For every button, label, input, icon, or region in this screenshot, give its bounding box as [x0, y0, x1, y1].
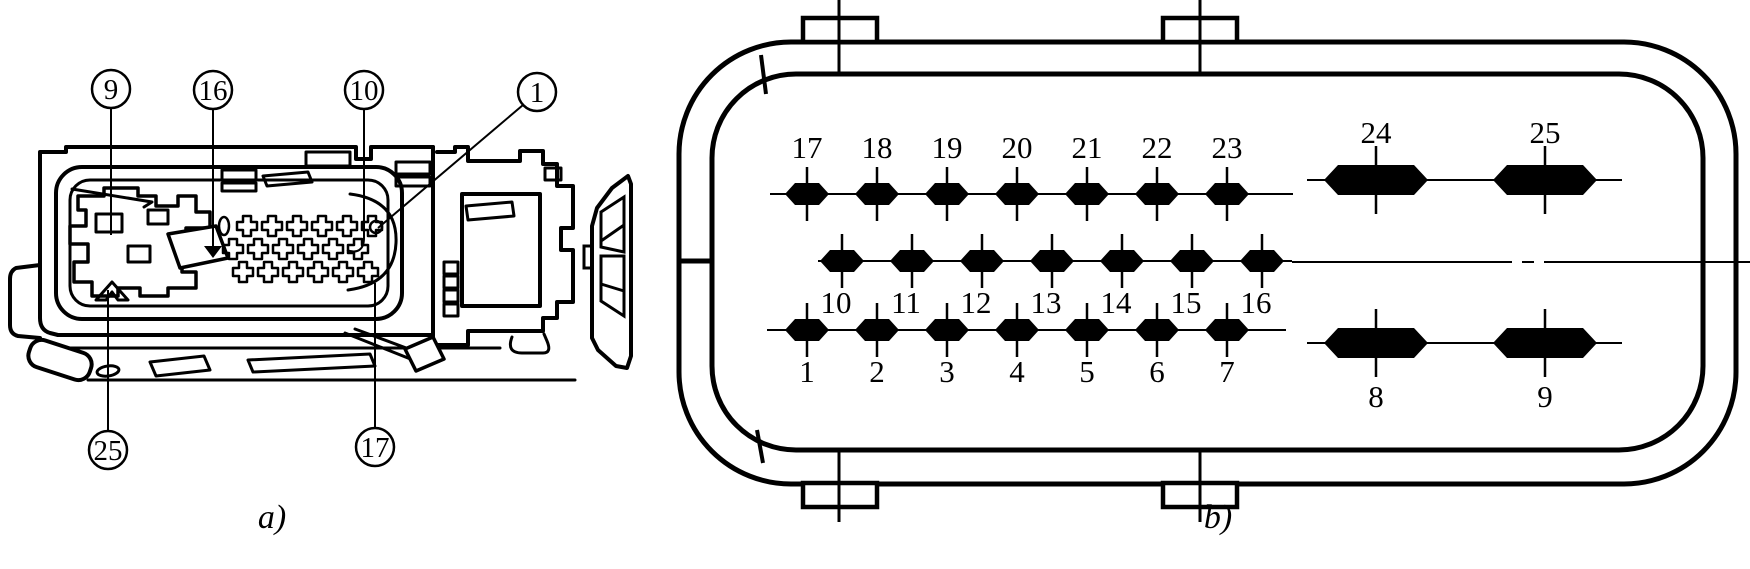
pin-number: 12	[961, 285, 992, 320]
pin-number: 3	[939, 354, 955, 389]
pin-contact	[855, 319, 899, 341]
pin-number: 16	[1241, 285, 1272, 320]
pin-14: 14	[1100, 234, 1144, 320]
seal-hole	[298, 239, 318, 259]
pin-number: 23	[1212, 130, 1243, 165]
pin-contact	[1030, 250, 1074, 272]
skirt-foot	[25, 337, 95, 383]
row-top-large: 2425	[1324, 115, 1597, 214]
pin-contact	[960, 250, 1004, 272]
pin-25: 25	[1493, 115, 1597, 214]
pin-contact	[1240, 250, 1284, 272]
seal-hole	[287, 216, 307, 236]
key-cluster-rect-2	[128, 246, 150, 262]
pin-contact	[1493, 165, 1597, 195]
pin-18: 18	[855, 130, 899, 221]
pin-contact	[1170, 250, 1214, 272]
top-detail-rect-1	[222, 170, 256, 180]
pin-number: 2	[869, 354, 885, 389]
pin-contact	[995, 183, 1039, 205]
pin-number: 25	[1530, 115, 1561, 150]
pin-number: 24	[1361, 115, 1393, 150]
caption-a: a)	[258, 499, 286, 536]
pin-contact	[1205, 183, 1249, 205]
seal-hole	[333, 262, 353, 282]
figure: 9161012517 17181920212223101112131415161…	[0, 0, 1750, 569]
row-top-small: 17181920212223	[785, 130, 1249, 221]
pin-23: 23	[1205, 130, 1249, 221]
seam-bottom-left	[757, 430, 763, 463]
callout-number: 17	[361, 432, 390, 464]
seal-hole	[233, 262, 253, 282]
rear-ladder-2	[444, 276, 458, 288]
seal-hole	[283, 262, 303, 282]
row-middle-small: 10111213141516	[820, 234, 1284, 320]
seal-hole	[237, 216, 257, 236]
pin-15: 15	[1170, 234, 1214, 320]
pin-21: 21	[1065, 130, 1109, 221]
pin-number: 9	[1537, 379, 1553, 414]
seal-hole	[323, 239, 343, 259]
pin-20: 20	[995, 130, 1039, 221]
pin-number: 15	[1171, 285, 1202, 320]
pin-contact	[1065, 319, 1109, 341]
pin-number: 22	[1142, 130, 1173, 165]
housing-top-outline	[40, 147, 433, 163]
seal-holes	[219, 216, 382, 282]
seal-hole	[258, 262, 278, 282]
pin-contact	[1065, 183, 1109, 205]
seam-top-left	[761, 55, 766, 94]
pin-number: 17	[792, 130, 823, 165]
pin-number: 7	[1219, 354, 1235, 389]
pin-contact	[1100, 250, 1144, 272]
pin-19: 19	[925, 130, 969, 221]
rear-bracket-wedge	[466, 202, 514, 220]
rear-bracket-window	[462, 194, 540, 306]
rear-ladder-3	[444, 290, 458, 302]
pin-number: 20	[1002, 130, 1033, 165]
seal-hole	[358, 262, 378, 282]
seal-hole	[273, 239, 293, 259]
rear-bottom-blob	[510, 334, 548, 353]
rear-ladder-4	[444, 304, 458, 316]
pin-contact	[890, 250, 934, 272]
latch-arm-block	[405, 337, 444, 371]
pin-number: 11	[891, 285, 921, 320]
seal-hole	[337, 216, 357, 236]
row-bottom-large: 89	[1324, 309, 1597, 414]
callout-number: 10	[350, 75, 379, 107]
connector-diagram: 9161012517 17181920212223101112131415161…	[0, 0, 1750, 569]
skirt-slot-1	[150, 356, 210, 376]
key-cluster-rect-3	[148, 210, 168, 224]
housing-left-tab	[10, 265, 40, 338]
pin-number: 5	[1079, 354, 1095, 389]
seal-hole	[308, 262, 328, 282]
pin-16: 16	[1240, 234, 1284, 320]
pin-contact	[1135, 319, 1179, 341]
top-detail-rect-3	[306, 152, 350, 166]
seal-hole	[248, 239, 268, 259]
key-cluster-rect-1	[96, 214, 122, 232]
pin-number: 18	[862, 130, 893, 165]
pin-number: 13	[1031, 285, 1062, 320]
pin-contact	[1493, 328, 1597, 358]
pin-12: 12	[960, 234, 1004, 320]
seal-hole-oval	[219, 217, 229, 235]
seal-hole	[262, 216, 282, 236]
skirt-slot-2	[248, 354, 375, 372]
pin-11: 11	[890, 234, 934, 320]
pin-contact	[1205, 319, 1249, 341]
pin-number: 8	[1368, 379, 1384, 414]
callout-number: 1	[530, 77, 545, 109]
pin-10: 10	[820, 234, 864, 320]
pin-contact	[995, 319, 1039, 341]
pin-number: 14	[1101, 285, 1133, 320]
pin-22: 22	[1135, 130, 1179, 221]
callout-9: 9	[92, 70, 130, 235]
rear-ladder-1	[444, 262, 458, 274]
top-detail-rect-2	[222, 183, 256, 191]
pin-number: 21	[1072, 130, 1103, 165]
pin-contact	[1135, 183, 1179, 205]
callout-17: 17	[356, 283, 394, 466]
pin-number: 4	[1009, 354, 1025, 389]
callout-number: 9	[104, 74, 119, 106]
top-detail-rect-4	[396, 162, 430, 174]
side-latch-hole-lower	[601, 256, 624, 316]
pin-contact	[785, 183, 829, 205]
pin-13: 13	[1030, 234, 1074, 320]
side-latch-hole-upper	[601, 197, 624, 252]
pin-8: 8	[1324, 309, 1428, 414]
pins: 1718192021222310111213141516123456724258…	[767, 115, 1750, 414]
connector-side-view	[10, 147, 575, 383]
seal-hole	[312, 216, 332, 236]
pin-contact	[785, 319, 829, 341]
pin-9: 9	[1493, 309, 1597, 414]
pin-number: 10	[821, 285, 852, 320]
callout-number: 16	[199, 75, 228, 107]
caption-b: b)	[1204, 499, 1232, 536]
pin-contact	[820, 250, 864, 272]
pin-contact	[855, 183, 899, 205]
pin-contact	[1324, 328, 1428, 358]
pin-17: 17	[785, 130, 829, 221]
pin-24: 24	[1324, 115, 1428, 214]
pin-number: 6	[1149, 354, 1165, 389]
side-latch-notch	[584, 246, 592, 268]
callout-leader-line	[378, 105, 523, 228]
seal-hole	[348, 239, 368, 259]
callouts-a: 9161012517	[89, 70, 556, 469]
pin-number: 1	[799, 354, 815, 389]
pin-contact	[1324, 165, 1428, 195]
pin-contact	[925, 319, 969, 341]
pin-number: 19	[932, 130, 963, 165]
callout-number: 25	[94, 435, 123, 467]
pin-contact	[925, 183, 969, 205]
